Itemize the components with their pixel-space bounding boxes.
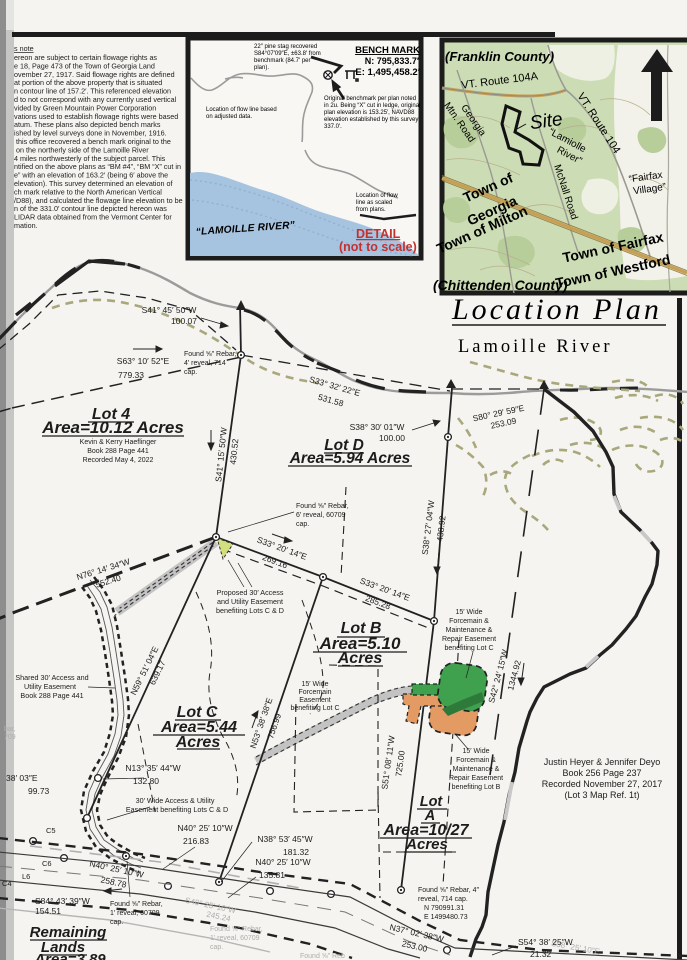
svg-text:Justin Heyer & Jennifer Deyo: Justin Heyer & Jennifer Deyo [544, 757, 661, 767]
svg-text:benefiting Lot C: benefiting Lot C [444, 645, 493, 652]
svg-text:N40° 25′ 10″W: N40° 25′ 10″W [255, 857, 310, 867]
svg-text:(Lot 3 Map Ref. 1t): (Lot 3 Map Ref. 1t) [564, 790, 639, 800]
svg-text:plan elevation is 153.25′, NAV: plan elevation is 153.25′, NAVD88 [324, 110, 415, 116]
svg-text:BENCH MARK: BENCH MARK [355, 45, 420, 56]
svg-text:Location of flow: Location of flow [356, 193, 398, 199]
svg-text:21.32: 21.32 [530, 949, 552, 959]
svg-text:15′ Wide: 15′ Wide [456, 609, 483, 616]
svg-text:22″ pine stag recovered: 22″ pine stag recovered [254, 44, 317, 50]
svg-text:N13° 35′ 44″W: N13° 35′ 44″W [125, 763, 180, 773]
svg-text:(not to scale): (not to scale) [339, 240, 417, 254]
svg-text:181.32: 181.32 [283, 847, 309, 857]
svg-text:N40° 25′ 10″W: N40° 25′ 10″W [177, 823, 232, 833]
svg-text:Repair Easement: Repair Easement [449, 775, 503, 782]
svg-text:Found ⅝″ Reb: Found ⅝″ Reb [300, 953, 345, 960]
svg-text:(Chittenden County): (Chittenden County) [433, 277, 568, 293]
svg-text:S84°07′09″E, ±63.8′ from: S84°07′09″E, ±63.8′ from [254, 51, 321, 57]
svg-text:337.0′.: 337.0′. [324, 124, 342, 130]
svg-text:and Utility Easement: and Utility Easement [217, 597, 283, 606]
svg-text:E: 1,495,458.2′: E: 1,495,458.2′ [355, 67, 420, 78]
svg-text:N38° 53′ 45″W: N38° 53′ 45″W [257, 834, 312, 844]
svg-text:benefiting Lot B: benefiting Lot B [452, 784, 501, 791]
svg-text:benefiting Lot C: benefiting Lot C [290, 705, 339, 712]
svg-text:Book 256 Page 237: Book 256 Page 237 [562, 768, 641, 778]
svg-text:Easement benefiting Lots C & D: Easement benefiting Lots C & D [126, 805, 228, 814]
svg-text:benchmark (84.7′ per: benchmark (84.7′ per [254, 58, 311, 64]
svg-text:plan).: plan). [254, 65, 269, 71]
svg-text:1′ reveal, 60709: 1′ reveal, 60709 [210, 935, 260, 942]
svg-text:Original benchmark per plan no: Original benchmark per plan noted [324, 96, 416, 102]
svg-text:N 790991.31: N 790991.31 [424, 905, 464, 912]
svg-text:779.33: 779.33 [118, 370, 144, 380]
svg-text:in 2u. Being “X” cut in ledge,: in 2u. Being “X” cut in ledge, original [324, 103, 420, 109]
svg-text:Kevin & Kerry Haeflinger: Kevin & Kerry Haeflinger [80, 439, 157, 446]
svg-text:Forcemain &: Forcemain & [456, 757, 496, 764]
svg-text:Location of flow line based: Location of flow line based [206, 107, 277, 113]
svg-text:benefiting Lots C & D: benefiting Lots C & D [216, 606, 284, 615]
svg-text:15′ Wide: 15′ Wide [463, 748, 490, 755]
svg-text:99.73: 99.73 [28, 786, 50, 796]
svg-text:Maintenance &: Maintenance & [446, 627, 493, 634]
svg-text:LIDAR data obtained from the V: LIDAR data obtained from the Vermont Cen… [14, 213, 172, 222]
svg-text:cap.: cap. [110, 919, 123, 926]
svg-text:Area=10.12 Acres: Area=10.12 Acres [41, 418, 184, 437]
svg-text:Shared 30′ Access and: Shared 30′ Access and [15, 673, 88, 682]
svg-text:Book 288 Page 441: Book 288 Page 441 [87, 448, 149, 455]
svg-text:C5: C5 [46, 826, 56, 835]
svg-text:30′ Wide Access & Utility: 30′ Wide Access & Utility [136, 796, 215, 805]
svg-text:6′ reveal, 60709: 6′ reveal, 60709 [296, 512, 346, 519]
svg-text:15′ Wide: 15′ Wide [302, 681, 329, 688]
svg-text:154.51: 154.51 [35, 906, 61, 916]
svg-text:Proposed 30′ Access: Proposed 30′ Access [217, 588, 284, 597]
svg-text:S38° 30′ 01″W: S38° 30′ 01″W [350, 422, 405, 432]
svg-text:Recorded November 27, 2017: Recorded November 27, 2017 [542, 779, 663, 789]
svg-text:Book 288 Page 441: Book 288 Page 441 [20, 691, 83, 700]
svg-text:DETAIL: DETAIL [356, 227, 401, 241]
svg-text:4′ reveal, 714: 4′ reveal, 714 [184, 360, 226, 367]
svg-text:Location Plan: Location Plan [451, 293, 662, 326]
svg-text:Found ⅝″ Rebar,: Found ⅝″ Rebar, [210, 926, 263, 933]
svg-text:cap.: cap. [184, 369, 197, 376]
svg-text:C6: C6 [42, 859, 52, 868]
svg-text:S63° 10′ 52″E: S63° 10′ 52″E [117, 356, 170, 366]
svg-text:100.07: 100.07 [171, 316, 197, 326]
svg-text:Maintenance &: Maintenance & [453, 766, 500, 773]
svg-text:Forcemain &: Forcemain & [449, 618, 489, 625]
svg-text:Utility Easement: Utility Easement [24, 682, 76, 691]
svg-text:line as scaled: line as scaled [356, 200, 392, 206]
svg-text:Recorded May 4, 2022: Recorded May 4, 2022 [83, 457, 154, 464]
svg-text:S41° 45′ 50″W: S41° 45′ 50″W [142, 305, 197, 315]
svg-text:216.83: 216.83 [183, 836, 209, 846]
svg-text:709: 709 [4, 734, 16, 741]
svg-text:S54° 38′ 25″W: S54° 38′ 25″W [518, 937, 573, 947]
svg-text:S84° 43′ 39″W: S84° 43′ 39″W [35, 896, 90, 906]
svg-text:(Franklin County): (Franklin County) [445, 49, 554, 64]
svg-text:L6: L6 [22, 872, 30, 881]
svg-text:cap.: cap. [296, 521, 309, 528]
svg-text:C4: C4 [2, 879, 12, 888]
svg-text:Found ⅝″ Rebar,: Found ⅝″ Rebar, [110, 901, 163, 908]
svg-text:bar,: bar, [4, 726, 16, 733]
svg-text:mation.: mation. [14, 221, 38, 230]
svg-text:Easement: Easement [299, 697, 331, 704]
svg-text:from plans.: from plans. [356, 207, 386, 213]
svg-text:135.81: 135.81 [259, 870, 285, 880]
svg-text:s note: s note [14, 44, 34, 53]
svg-text:cap.: cap. [210, 944, 223, 951]
svg-text:N: 795,833.7′: N: 795,833.7′ [365, 56, 419, 66]
svg-text:132.80: 132.80 [133, 776, 159, 786]
svg-text:Found ⅝″ Rebar,: Found ⅝″ Rebar, [184, 351, 237, 358]
svg-text:reveal, 714 cap.: reveal, 714 cap. [418, 896, 468, 903]
svg-text:Found ⅝″ Rebar,: Found ⅝″ Rebar, [296, 503, 349, 510]
svg-text:100.00: 100.00 [379, 433, 405, 443]
svg-text:Repair Easement: Repair Easement [442, 636, 496, 643]
svg-text:Found ⅝″ Rebar, 4″: Found ⅝″ Rebar, 4″ [418, 887, 480, 894]
svg-text:38′ 03″E: 38′ 03″E [6, 773, 38, 783]
svg-text:Forcemain: Forcemain [298, 689, 331, 696]
svg-text:on adjusted data.: on adjusted data. [206, 114, 252, 120]
svg-text:1′ reveal, 60709: 1′ reveal, 60709 [110, 910, 160, 917]
svg-text:E 1499480.73: E 1499480.73 [424, 914, 468, 921]
svg-text:Lamoille River: Lamoille River [458, 337, 613, 357]
svg-text:elevation established by this: elevation established by this survey [324, 117, 418, 123]
